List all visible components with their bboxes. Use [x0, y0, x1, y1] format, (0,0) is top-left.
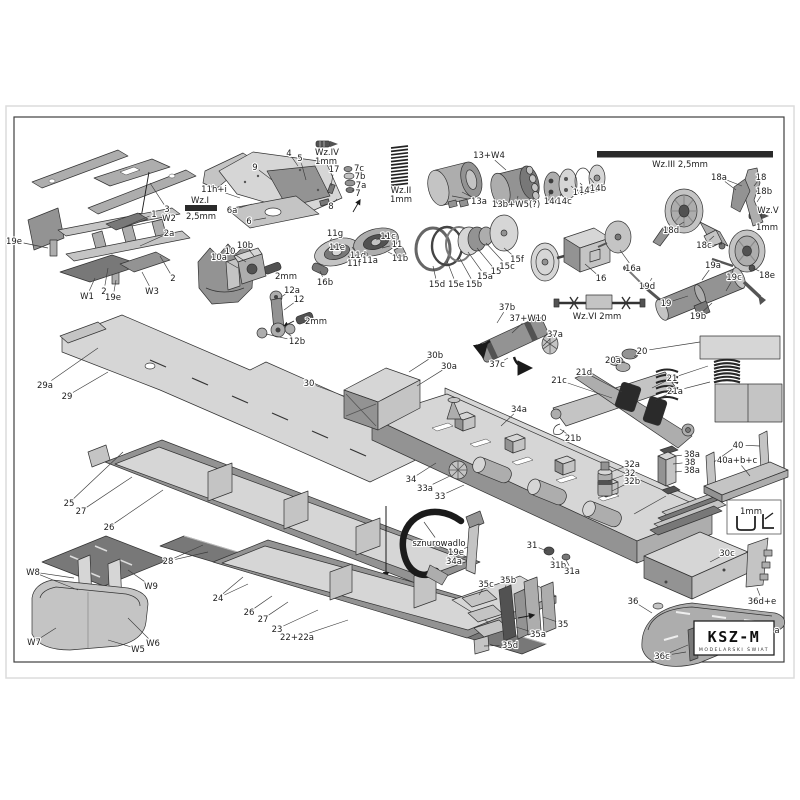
- part-label-27: 27: [76, 507, 87, 517]
- part-label-4: 4: [286, 149, 291, 159]
- part-label-16a: 16a: [625, 264, 641, 274]
- part-label-24: 24: [213, 594, 224, 604]
- part-label-19e: 19e: [6, 237, 22, 247]
- part-label-38a: 38a: [684, 466, 700, 476]
- part-label-W3: W3: [145, 287, 159, 297]
- part-label-W7: W7: [27, 638, 41, 648]
- part-label-5: 5: [297, 154, 302, 164]
- part-label-19: 19: [661, 299, 672, 309]
- part-label-33: 33: [435, 492, 446, 502]
- part-label-a: a: [774, 626, 779, 636]
- part-label-36: 36: [628, 597, 639, 607]
- part-label-37c: 37c: [489, 360, 505, 370]
- part-label-18a: 18a: [711, 173, 727, 183]
- part-label-26: 26: [104, 523, 115, 533]
- brand-box: KSZ-M MODELARSKI ŚWIAT: [694, 621, 774, 655]
- part-label-19d: 19d: [639, 282, 655, 292]
- part-label-15d: 15d: [429, 280, 445, 290]
- part-label-33a: 33a: [417, 484, 433, 494]
- part-label-11f: 11f: [347, 259, 362, 269]
- part-label-13a: 13a: [471, 197, 487, 207]
- part-label-35c: 35c: [478, 580, 494, 590]
- template-staple-1mm: [727, 500, 781, 534]
- part-label-19b: 19b: [690, 312, 706, 322]
- part-label-37+W10: 37+W10: [509, 314, 546, 324]
- instruction-sheet: KSZ-M MODELARSKI ŚWIAT 31W22a219eW1219eW…: [0, 0, 800, 800]
- part-label-21a: 21a: [667, 387, 683, 397]
- part-label-36c: 36c: [654, 652, 670, 662]
- part-label-Wz.VI 2mm: Wz.VI 2mm: [573, 312, 622, 322]
- part-label-18c: 18c: [696, 241, 712, 251]
- part-label-10a: 10a: [211, 253, 227, 263]
- part-label-11g: 11g: [327, 229, 343, 239]
- part-label-20a: 20a: [605, 356, 621, 366]
- part-label-2,5mm: 2,5mm: [186, 212, 216, 222]
- brand-logo: KSZ-M: [708, 628, 761, 646]
- part-label-22+22a: 22+22a: [280, 633, 314, 643]
- part-label-1mm: 1mm: [315, 157, 337, 167]
- part-label-32b: 32b: [624, 477, 640, 487]
- part-label-11: 11: [392, 240, 403, 250]
- part-label-18: 18: [756, 173, 767, 183]
- part-label-16: 16: [596, 274, 607, 284]
- part-label-6a: 6a: [227, 206, 238, 216]
- part-label-8: 8: [328, 202, 333, 212]
- part-label-21: 21: [667, 374, 678, 384]
- part-label-25: 25: [64, 499, 75, 509]
- part-label-2mm: 2mm: [305, 317, 327, 327]
- part-label-7: 7: [355, 189, 360, 199]
- part-label-2: 2: [170, 274, 175, 284]
- part-label-W6: W6: [146, 639, 160, 649]
- part-label-35b: 35b: [500, 576, 516, 586]
- part-label-20: 20: [637, 347, 648, 357]
- part-label-15e: 15e: [448, 280, 464, 290]
- part-label-40: 40: [733, 441, 744, 451]
- part-label-W1: W1: [80, 292, 94, 302]
- part-label-29: 29: [62, 392, 73, 402]
- part-label-34a: 34a: [511, 405, 527, 415]
- part-label-36d+e: 36d+e: [748, 597, 777, 607]
- part-label-12b: 12b: [289, 337, 305, 347]
- part-label-11b: 11b: [392, 254, 408, 264]
- part-label-W8: W8: [26, 568, 40, 578]
- part-label-30c: 30c: [719, 549, 735, 559]
- part-label-11a: 11a: [362, 256, 378, 266]
- part-label-30b: 30b: [427, 351, 443, 361]
- part-label-27: 27: [258, 615, 269, 625]
- part-label-35d: 35d: [502, 641, 518, 651]
- part-label-15f: 15f: [510, 255, 525, 265]
- part-label-37a: 37a: [547, 330, 563, 340]
- part-label-26: 26: [244, 608, 255, 618]
- part-label-19c: 19c: [726, 273, 742, 283]
- part-label-37b: 37b: [499, 303, 515, 313]
- part-label-1mm: 1mm: [740, 507, 762, 517]
- part-label-21d: 21d: [576, 368, 592, 378]
- part-label-19e: 19e: [105, 293, 121, 303]
- part-label-35a: 35a: [530, 630, 546, 640]
- part-label-30: 30: [304, 379, 315, 389]
- part-label-Wz.V: Wz.V: [757, 206, 779, 216]
- part-label-Wz.III 2,5mm: Wz.III 2,5mm: [652, 160, 708, 170]
- part-label-18d: 18d: [663, 226, 679, 236]
- part-label-31a: 31a: [564, 567, 580, 577]
- part-label-2mm: 2mm: [275, 272, 297, 282]
- part-label-34: 34: [406, 475, 417, 485]
- part-label-35: 35: [558, 620, 569, 630]
- part-label-18b: 18b: [756, 187, 772, 197]
- part-label-13b+W5(?): 13b+W5(?): [492, 200, 540, 210]
- part-label-W2: W2: [162, 214, 176, 224]
- part-label-Wz.I: Wz.I: [191, 196, 209, 206]
- part-label-W5: W5: [131, 645, 145, 655]
- part-label-28: 28: [163, 557, 174, 567]
- part-label-W9: W9: [144, 582, 158, 592]
- part-label-40a+b+c: 40a+b+c: [717, 456, 758, 466]
- part-label-9: 9: [252, 163, 257, 173]
- part-label-11e: 11e: [329, 243, 345, 253]
- part-label-11h+i: 11h+i: [201, 185, 227, 195]
- part-label-21c: 21c: [551, 376, 567, 386]
- part-label-13+W4: 13+W4: [473, 151, 505, 161]
- part-label-31: 31: [527, 541, 538, 551]
- part-label-18e: 18e: [759, 271, 775, 281]
- part-label-1mm: 1mm: [390, 195, 412, 205]
- part-label-12: 12: [294, 295, 305, 305]
- part-label-10b: 10b: [237, 241, 253, 251]
- part-label-14c: 14c: [556, 197, 572, 207]
- part-label-21b: 21b: [565, 434, 581, 444]
- part-label-16b: 16b: [317, 278, 333, 288]
- part-label-6: 6: [246, 217, 251, 227]
- part-label-30a: 30a: [441, 362, 457, 372]
- part-label-14b: 14b: [590, 184, 606, 194]
- part-label-1mm: 1mm: [756, 223, 778, 233]
- brand-subtitle: MODELARSKI ŚWIAT: [699, 646, 769, 653]
- part-label-29a: 29a: [37, 381, 53, 391]
- exploded-assembly-diagram: KSZ-M MODELARSKI ŚWIAT 31W22a219eW1219eW…: [0, 0, 800, 800]
- template-wz3-bar: [597, 151, 773, 158]
- part-label-34a: 34a: [446, 557, 462, 567]
- part-label-19a: 19a: [705, 261, 721, 271]
- part-label-2a: 2a: [164, 229, 175, 239]
- part-label-1: 1: [151, 210, 156, 220]
